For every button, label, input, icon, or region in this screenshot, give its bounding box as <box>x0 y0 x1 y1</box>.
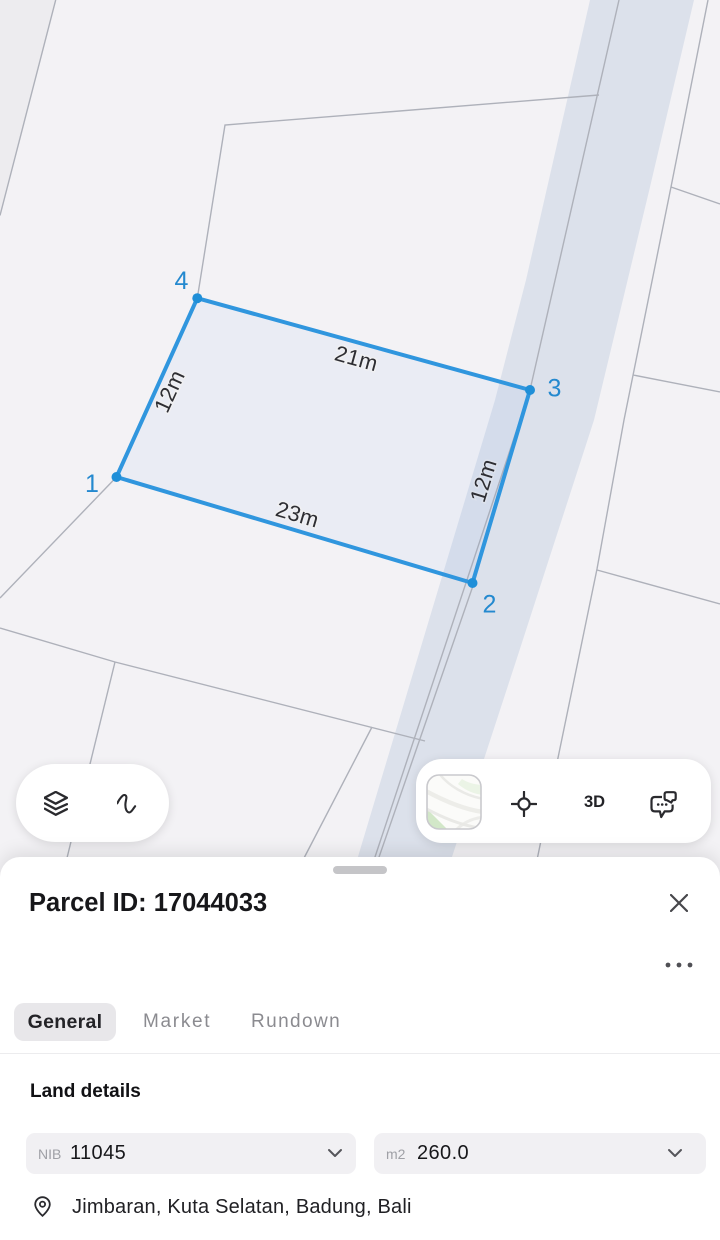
svg-text:3: 3 <box>548 375 562 403</box>
svg-text:2: 2 <box>483 591 497 619</box>
svg-text:1: 1 <box>85 470 99 498</box>
svg-text:4: 4 <box>175 267 189 295</box>
